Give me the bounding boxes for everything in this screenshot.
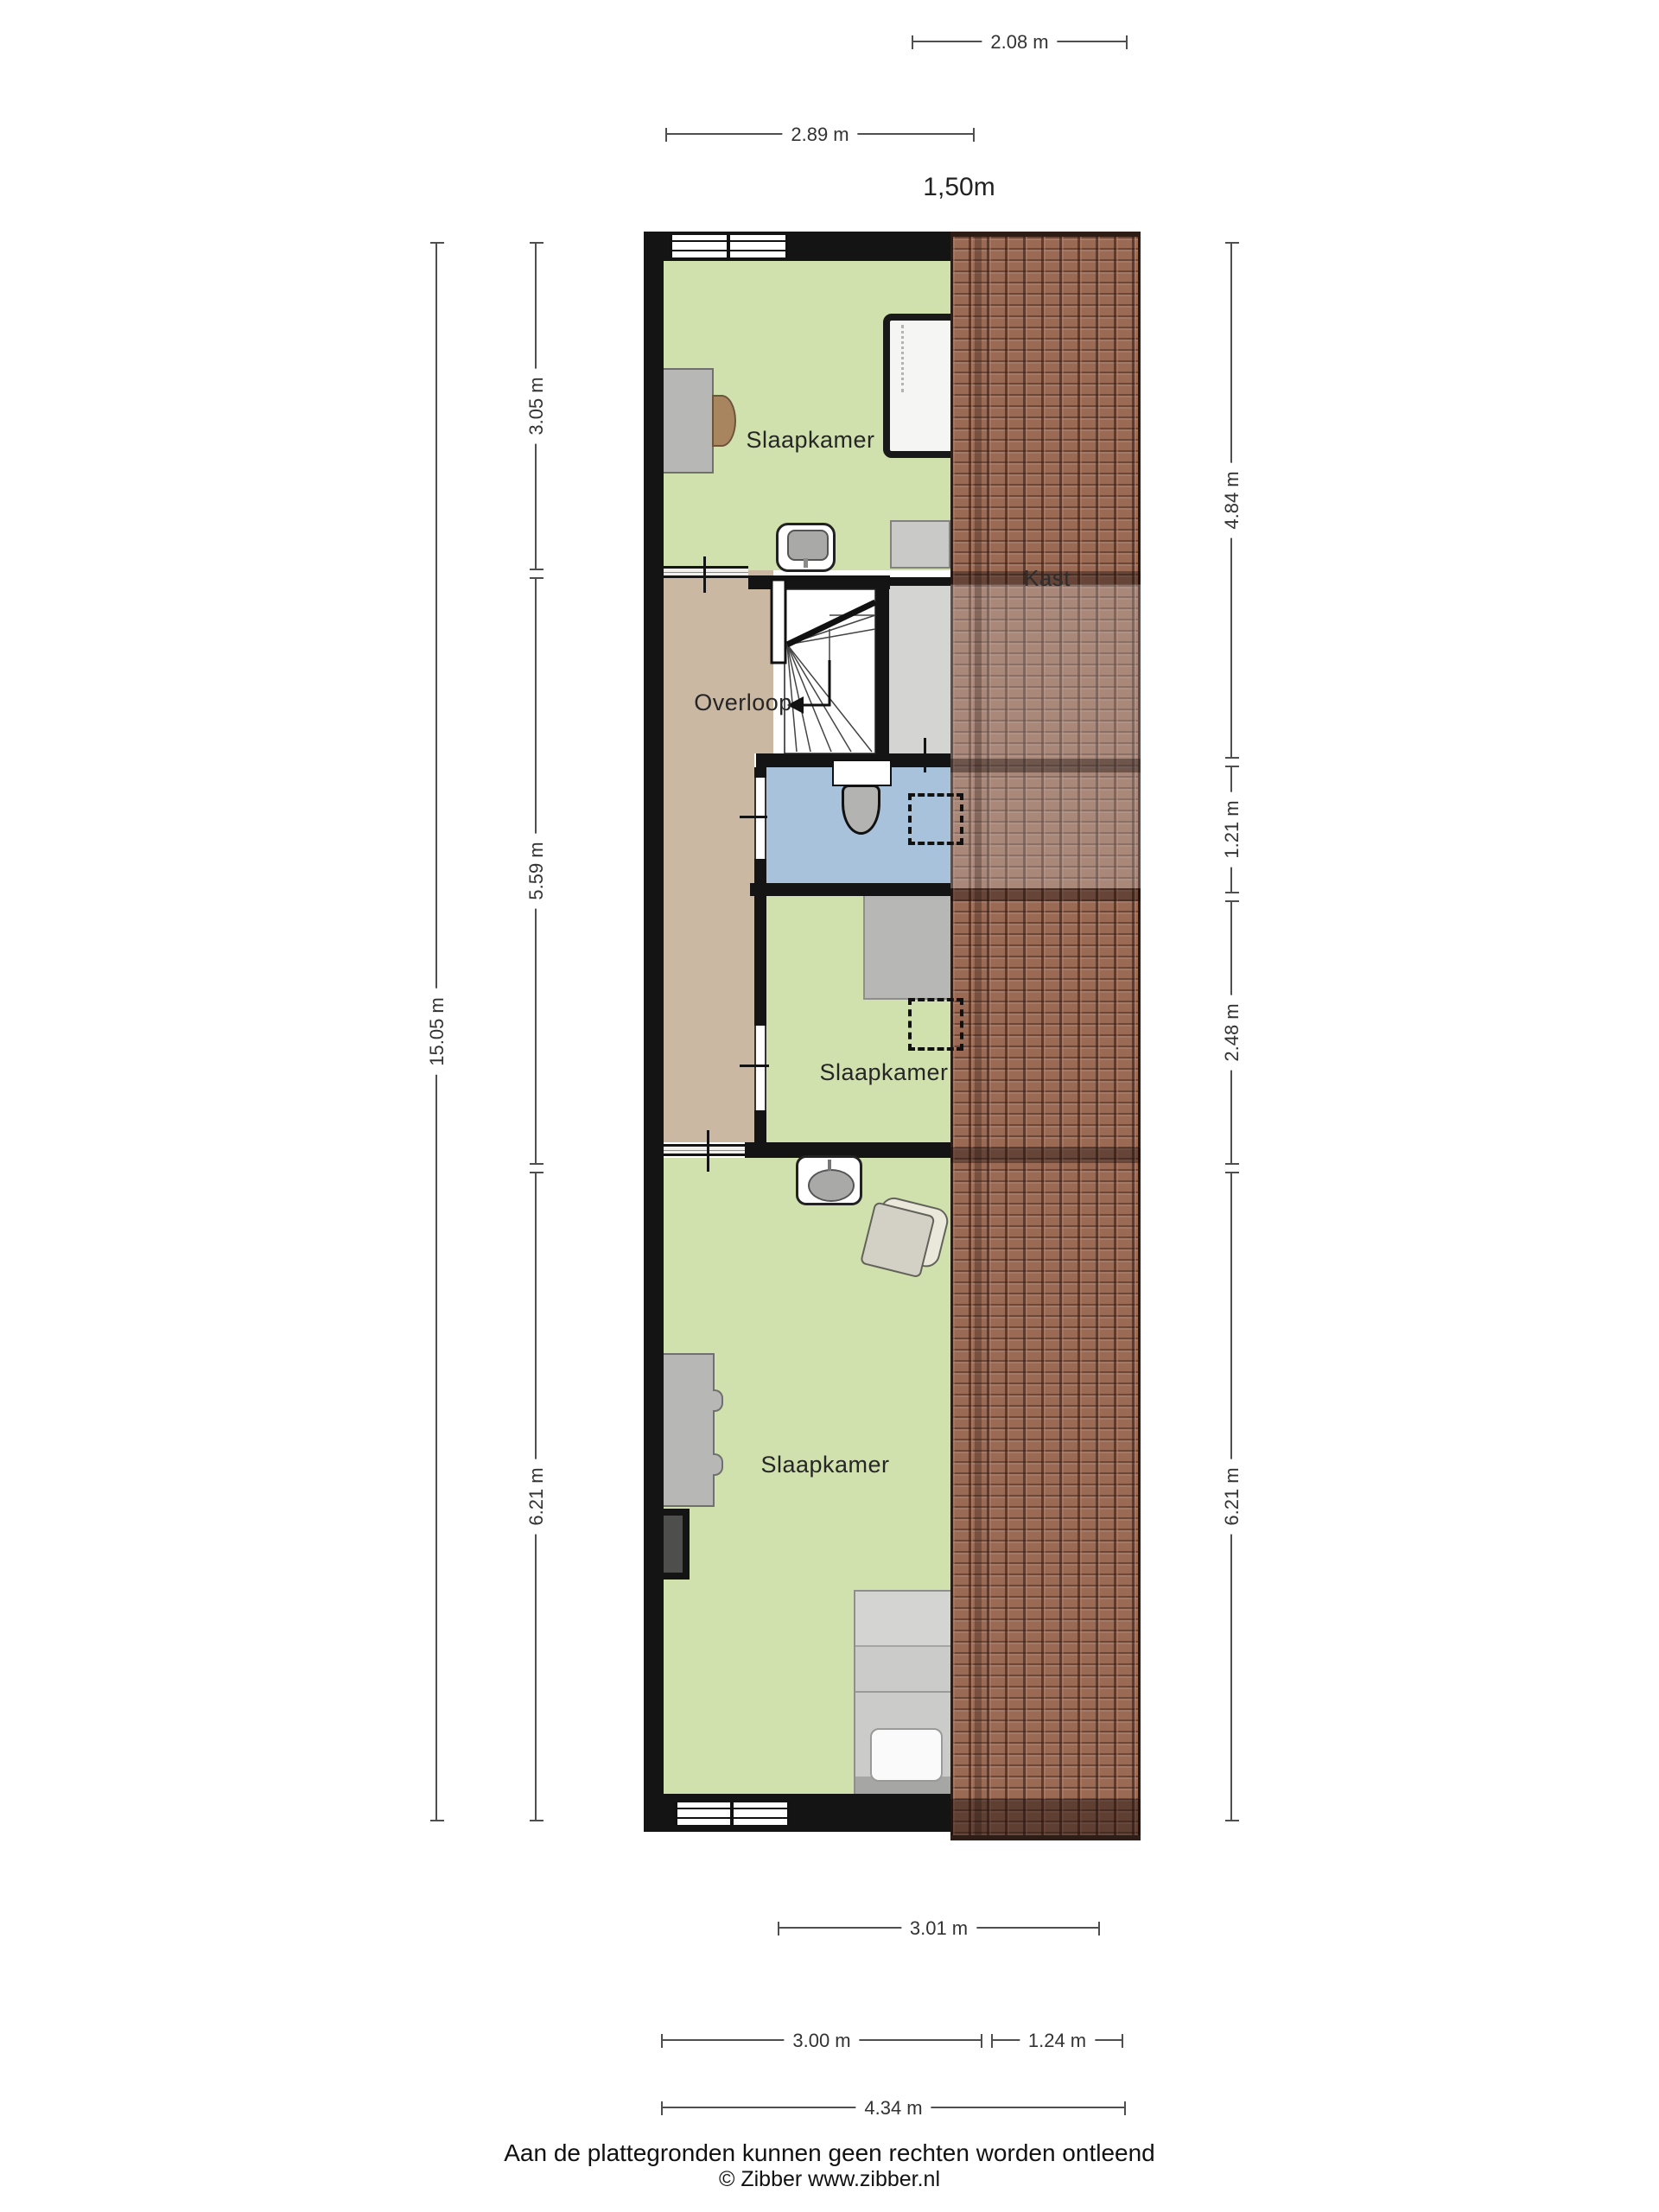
dashed-outline-middle (908, 998, 963, 1051)
partition-landing-bottom (664, 1144, 745, 1156)
dim-label: 4.34 m (855, 2097, 931, 2120)
dim-label: 4.84 m (1221, 462, 1243, 537)
dim-right-2-48: 2.48 m (1230, 900, 1232, 1165)
dim-left-5-59: 5.59 m (535, 577, 537, 1165)
dim-label: 3.01 m (901, 1917, 976, 1940)
door-tick-closet (924, 738, 926, 772)
scale-height-label: 1,50m (923, 173, 995, 202)
room-label-bedroom-middle: Slaapkamer (819, 1059, 948, 1086)
dim-bottom-3-01: 3.01 m (778, 1927, 1100, 1929)
wall-middle-left-b (754, 1110, 766, 1142)
wall-bathroom-left-b (754, 859, 766, 886)
sink-top-bedroom (776, 523, 836, 572)
dim-left-6-21: 6.21 m (535, 1172, 537, 1821)
room-label-bedroom-top: Slaapkamer (746, 427, 874, 454)
door-tick-bottom-bedroom (707, 1130, 709, 1172)
bed-bottom-bedroom (854, 1590, 953, 1796)
wall-left (644, 232, 664, 1832)
roof-tiles (950, 232, 1141, 1840)
dim-right-1-21: 1.21 m (1230, 766, 1232, 893)
dim-right-4-84: 4.84 m (1230, 242, 1232, 759)
dim-label: 2.08 m (982, 31, 1057, 54)
door-middle-bedroom (754, 1026, 766, 1110)
dim-label: 15.05 m (426, 988, 448, 1075)
shower-outline (908, 793, 963, 845)
dim-label: 6.21 m (525, 1459, 548, 1534)
dim-label: 5.59 m (525, 833, 548, 908)
dresser-bottom-bedroom (658, 1353, 715, 1507)
dim-top-2-08: 2.08 m (912, 41, 1128, 42)
partition-top-bedroom (664, 566, 748, 578)
dim-label: 1.21 m (1221, 791, 1243, 867)
dim-bottom-3-00: 3.00 m (661, 2039, 982, 2041)
dim-top-2-89: 2.89 m (665, 133, 975, 135)
dim-right-6-21: 6.21 m (1230, 1172, 1232, 1821)
door-tick-bathroom (740, 816, 767, 818)
door-tick-top-bedroom (703, 556, 706, 593)
cupboard-top-bedroom (890, 520, 950, 569)
dim-bottom-1-24: 1.24 m (991, 2039, 1123, 2041)
window-bottom (675, 1802, 790, 1825)
floorplan-page: Slaapkamer Overloop Kast Slaapkamer Slaa… (0, 0, 1659, 2212)
dim-label: 3.00 m (784, 2030, 859, 2052)
pillow (870, 1728, 943, 1782)
dim-bottom-4-34: 4.34 m (661, 2107, 1126, 2108)
dim-label: 2.48 m (1221, 995, 1243, 1070)
wall-middle-left-a (754, 896, 766, 1026)
dim-label: 6.21 m (1221, 1459, 1243, 1534)
door-bathroom (754, 778, 766, 859)
room-label-closet: Kast (1024, 565, 1071, 592)
footer-credit: © Zibber www.zibber.nl (719, 2167, 940, 2192)
room-label-landing: Overloop (694, 690, 792, 716)
door-tick-middle-bedroom (740, 1065, 769, 1067)
wall-bathroom-bottom (750, 883, 955, 896)
wall-bathroom-left-a (754, 767, 766, 778)
dim-label: 3.05 m (525, 368, 548, 443)
desk-top-bedroom (658, 368, 714, 474)
wall-closet-top (890, 577, 955, 586)
dim-left-3-05: 3.05 m (535, 242, 537, 570)
window-top (670, 235, 788, 257)
staircase (770, 574, 891, 769)
dim-label: 1.24 m (1020, 2030, 1095, 2052)
dim-label: 2.89 m (782, 124, 857, 146)
roof-knee-wall-line (975, 237, 982, 1835)
room-label-bedroom-bottom: Slaapkamer (760, 1452, 889, 1478)
footer-disclaimer: Aan de plattegronden kunnen geen rechten… (504, 2139, 1154, 2167)
dim-left-total: 15.05 m (435, 242, 437, 1821)
floor-landing (664, 570, 754, 1142)
sink-bottom-bedroom (796, 1155, 862, 1205)
